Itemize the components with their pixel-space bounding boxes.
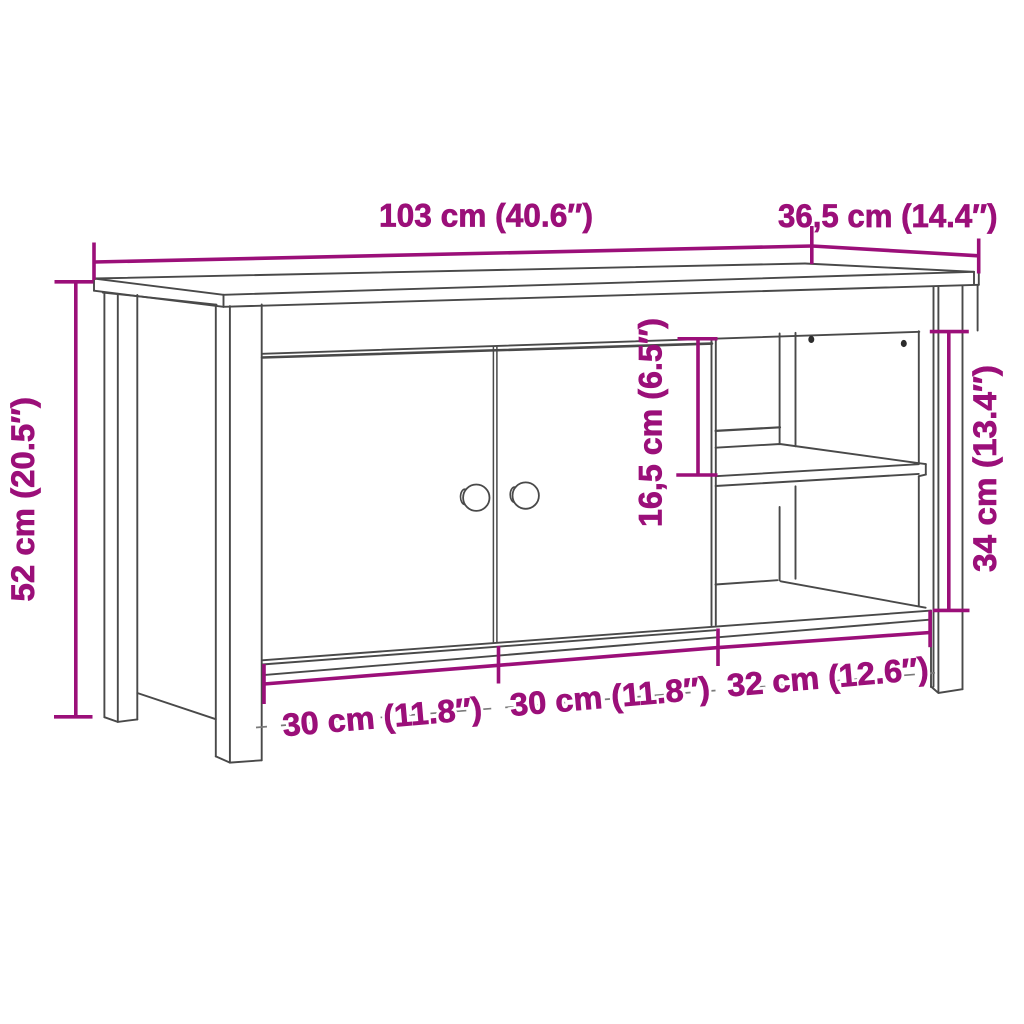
svg-text:16,5 cm (6.5″): 16,5 cm (6.5″) [633, 318, 669, 527]
svg-text:34 cm (13.4″): 34 cm (13.4″) [967, 365, 1003, 572]
svg-text:103 cm (40.6″): 103 cm (40.6″) [379, 197, 593, 233]
svg-text:52 cm (20.5″): 52 cm (20.5″) [5, 397, 41, 602]
svg-text:36,5 cm (14.4″): 36,5 cm (14.4″) [778, 198, 998, 234]
